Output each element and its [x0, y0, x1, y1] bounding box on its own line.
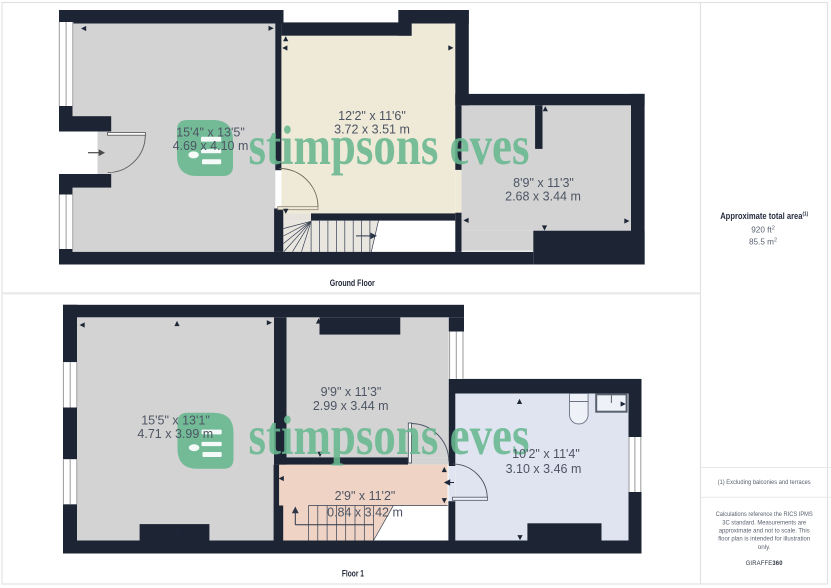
svg-text:Calculations reference the RIC: Calculations reference the RICS IPMS — [716, 511, 813, 518]
svg-text:9'9" x 11'3": 9'9" x 11'3" — [321, 385, 382, 399]
svg-text:approximate and not to scale.: approximate and not to scale. This — [719, 528, 810, 535]
svg-text:GIRAFFE360: GIRAFFE360 — [746, 560, 783, 567]
svg-text:2'9" x 11'2": 2'9" x 11'2" — [335, 489, 396, 503]
svg-text:15'4" x 13'5": 15'4" x 13'5" — [176, 125, 245, 139]
svg-text:3.10 x 3.46 m: 3.10 x 3.46 m — [506, 462, 582, 476]
svg-text:4.69 x 4.10 m: 4.69 x 4.10 m — [173, 139, 249, 153]
svg-text:0.84 x 3.42 m: 0.84 x 3.42 m — [327, 505, 403, 519]
svg-text:4.71 x 3.99 m: 4.71 x 3.99 m — [137, 427, 213, 441]
svg-text:only.: only. — [758, 544, 771, 551]
svg-text:85.5 m2: 85.5 m2 — [749, 238, 777, 247]
svg-text:15'5" x 13'1": 15'5" x 13'1" — [141, 413, 210, 427]
svg-text:Ground Floor: Ground Floor — [330, 278, 375, 288]
svg-text:stimpsons eves: stimpsons eves — [249, 405, 530, 466]
svg-text:12'2" x 11'6": 12'2" x 11'6" — [338, 109, 406, 123]
svg-text:8'9" x 11'3": 8'9" x 11'3" — [513, 176, 574, 190]
svg-text:2.99 x 3.44 m: 2.99 x 3.44 m — [313, 399, 389, 413]
svg-text:10'2" x 11'4": 10'2" x 11'4" — [512, 447, 580, 461]
svg-text:Floor 1: Floor 1 — [342, 568, 364, 578]
svg-text:(1) Excluding balconies and te: (1) Excluding balconies and terraces — [718, 479, 811, 486]
svg-text:floor plan is intended for ill: floor plan is intended for illustration — [718, 536, 810, 543]
svg-text:920 ft2: 920 ft2 — [751, 226, 775, 235]
svg-text:3.72 x 3.51 m: 3.72 x 3.51 m — [334, 123, 410, 137]
svg-text:3C standard. Measurements are: 3C standard. Measurements are — [722, 519, 806, 526]
svg-text:2.68 x 3.44 m: 2.68 x 3.44 m — [505, 190, 581, 204]
svg-text:Approximate total area(1): Approximate total area(1) — [720, 211, 808, 221]
